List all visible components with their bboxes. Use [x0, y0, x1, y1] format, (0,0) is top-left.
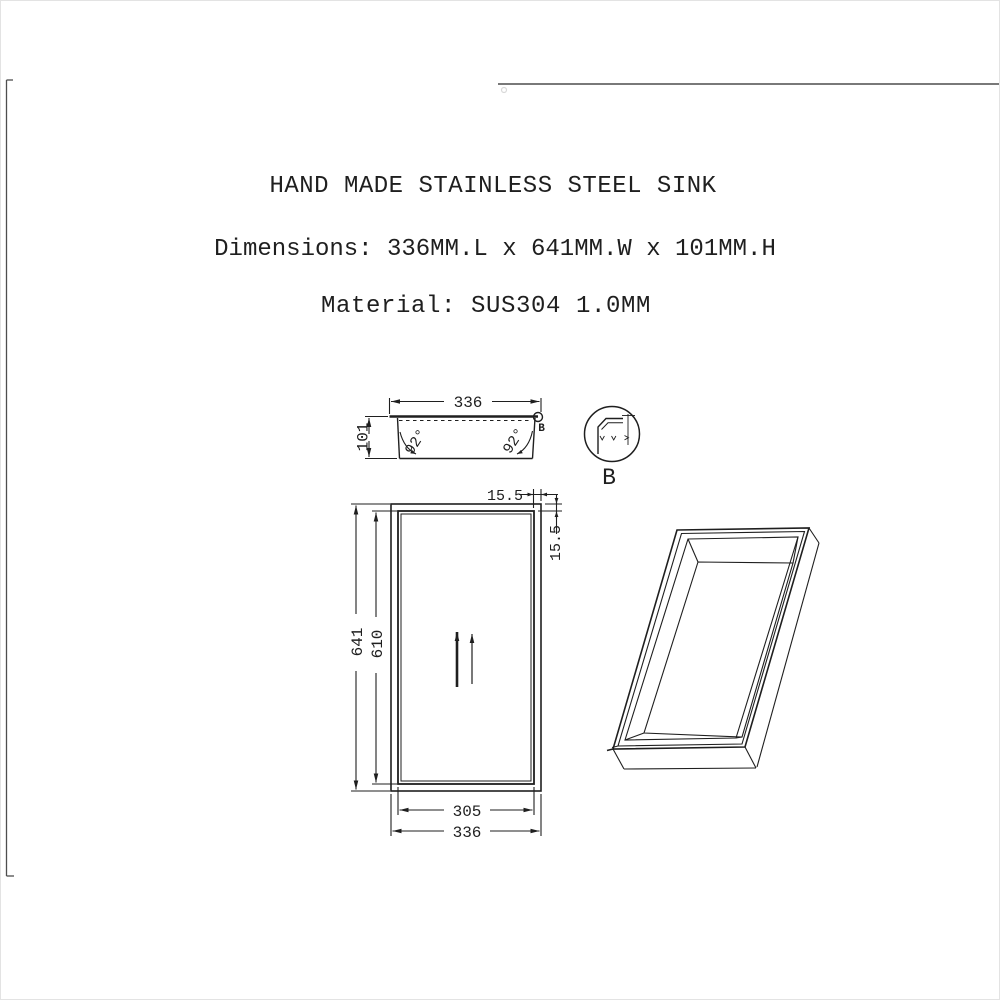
plan-outer-rect: [391, 504, 541, 791]
section-width-label: 336: [454, 394, 483, 412]
detail-corner-profile: [598, 419, 623, 455]
plan-outer-width-label: 336: [453, 824, 482, 842]
iso-right-flange-edge: [757, 528, 819, 767]
plan-inner-rect-outer: [398, 511, 534, 784]
section-angle-right-label: 92°: [500, 425, 529, 457]
plan-rim-top-label: 15.5: [487, 488, 523, 505]
plan-outer-length-label: 641: [349, 628, 367, 657]
plan-inner-length-label: 610: [369, 630, 387, 659]
plan-inner-width-label: 305: [453, 803, 482, 821]
iso-outer-rim: [613, 528, 809, 749]
plan-inner-rect-inner: [401, 514, 531, 781]
plan-view: 641 610 15.5: [349, 488, 565, 842]
plan-direction-arrows: [457, 632, 472, 687]
section-angle-left-label: 92°: [402, 426, 431, 458]
plan-rim-top-dimension: [519, 489, 558, 508]
detail-circle: [585, 407, 640, 462]
sheet-border-artifact: [7, 80, 1000, 876]
detail-marker-label: B: [538, 423, 545, 435]
drawing-canvas: 336 101 92° 92° B: [1, 1, 1000, 1000]
section-height-label: 101: [355, 423, 373, 452]
plan-rim-right-label: 15.5: [548, 525, 565, 561]
drawing-sheet: HAND MADE STAINLESS STEEL SINK Dimension…: [0, 0, 1000, 1000]
detail-view-label: B: [602, 465, 616, 491]
section-view: 336 101 92° 92° B: [355, 394, 546, 459]
iso-bowl-floor: [644, 562, 793, 737]
detail-view: B: [585, 407, 640, 492]
isometric-view: [607, 528, 819, 769]
